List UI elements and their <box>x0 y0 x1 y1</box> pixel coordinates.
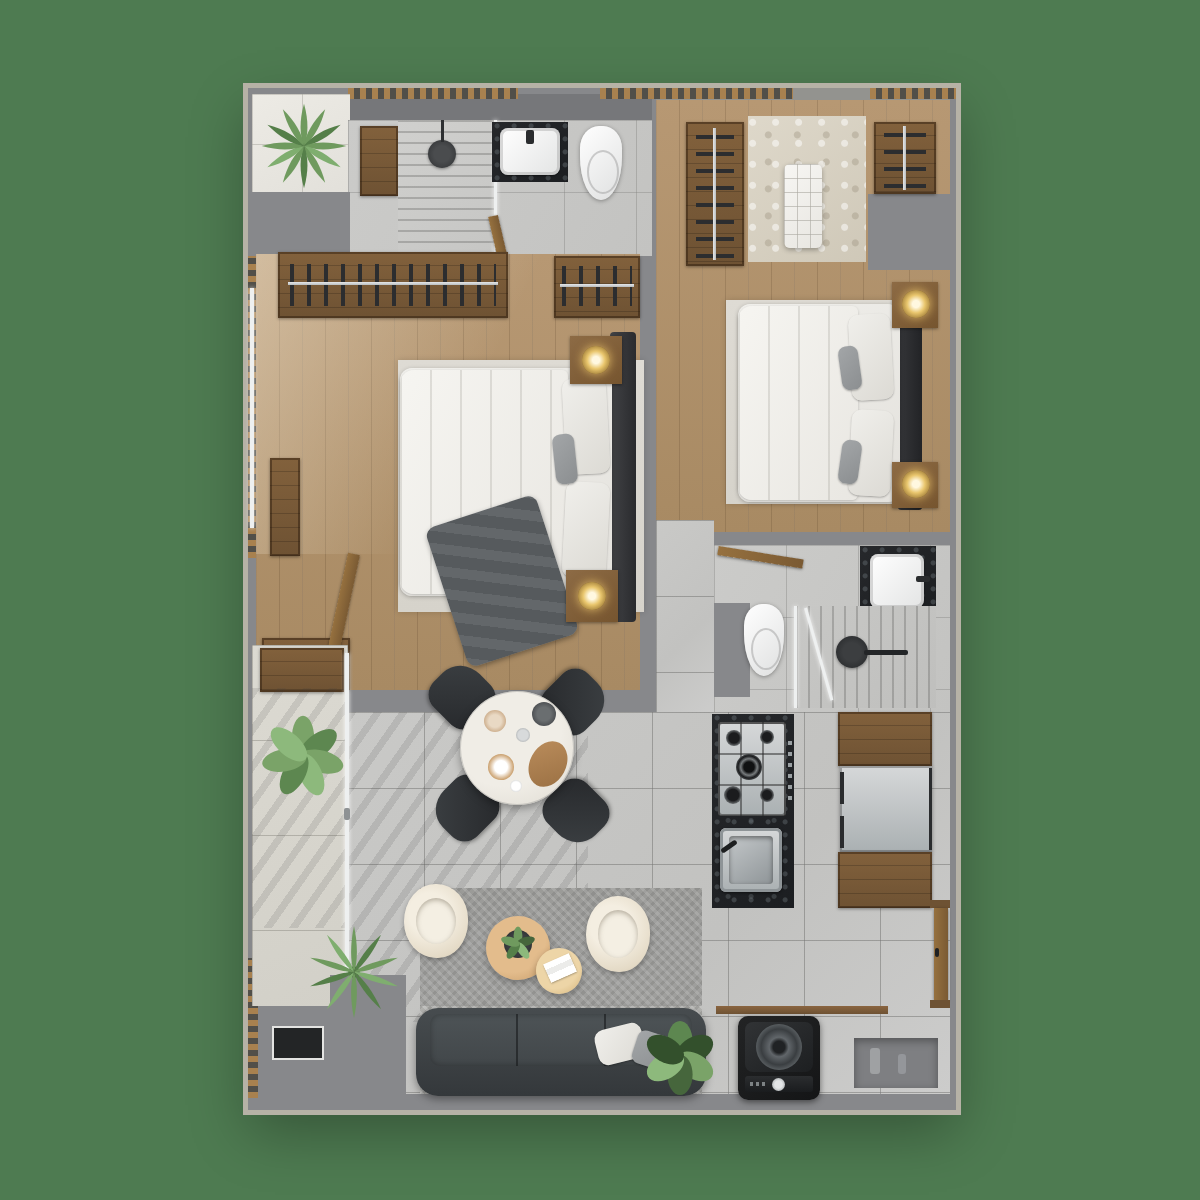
shower2-arm <box>864 650 908 655</box>
bedroom2-lamp-bottom <box>902 470 930 498</box>
louver-top-2 <box>600 88 793 99</box>
wall-closet-right <box>868 194 950 270</box>
refrigerator <box>840 766 932 852</box>
burner-icon <box>760 788 774 802</box>
burner-icon <box>726 730 742 746</box>
vanity1-faucet-icon <box>526 130 534 144</box>
burner-icon <box>736 754 762 780</box>
burner-icon <box>724 786 742 804</box>
sofa-seat-divider <box>516 1014 518 1066</box>
armchair-seat <box>598 910 638 958</box>
plate <box>488 754 514 780</box>
entry-door-frame <box>930 900 950 908</box>
equipment-panel <box>272 1026 324 1060</box>
washer-knob <box>772 1078 785 1091</box>
shower1-head-icon <box>428 140 456 168</box>
cup <box>516 728 530 742</box>
refrigerator-hinge <box>929 768 932 850</box>
fern-plant <box>258 100 350 192</box>
shower1-stem <box>441 120 444 142</box>
plate <box>532 702 556 726</box>
cup <box>510 780 522 792</box>
floor-plan-screenshot: { "image": { "kind": "apartment floor pl… <box>0 0 1200 1200</box>
toilet2-seat-line <box>751 628 781 670</box>
plate <box>484 710 506 732</box>
wall-below-terrace <box>248 192 350 256</box>
palm-plant <box>306 924 402 1020</box>
bedroom1-lamp-top <box>582 346 610 374</box>
closet-rail-right <box>903 126 906 190</box>
armchair-seat <box>416 898 456 944</box>
shower2-glass <box>794 606 797 708</box>
washer-buttons <box>750 1082 768 1086</box>
bedroom2-lamp-top <box>902 290 930 318</box>
bath-mat-wood <box>360 126 398 196</box>
vanity2-faucet-icon <box>916 576 930 582</box>
bedroom1-hangers <box>290 264 496 306</box>
burner-icon <box>760 730 774 744</box>
refrigerator-handle <box>840 816 844 848</box>
niche-bottle <box>898 1054 906 1074</box>
corridor-floor <box>656 520 714 712</box>
kitchen-cabinet-top <box>838 712 932 766</box>
entry-door-handle <box>935 948 939 957</box>
bedroom1-window <box>250 288 254 528</box>
coffee-table-plant <box>496 922 540 966</box>
cooktop-knobs <box>788 736 792 800</box>
niche-bottle <box>870 1048 880 1074</box>
sliding-door-handle <box>344 808 350 820</box>
laundry-threshold <box>716 1006 888 1014</box>
washer-drum <box>756 1024 802 1070</box>
monstera-plant <box>638 1008 722 1108</box>
closet-rail-left <box>713 128 716 260</box>
bedroom1-rail-2 <box>560 284 634 287</box>
bedroom1-pillow-bottom <box>562 481 611 579</box>
toilet1-seat-line <box>587 150 619 194</box>
kitchen-cabinet-bottom <box>838 852 932 908</box>
bedroom1-console <box>270 458 300 556</box>
balcony-deck <box>260 648 344 692</box>
louver-top-3 <box>870 88 956 99</box>
closet-bench <box>784 164 822 248</box>
alocasia-plant <box>260 714 346 800</box>
laundry-niche <box>854 1038 938 1088</box>
floor-plan <box>248 88 956 1110</box>
louver-top-1 <box>348 88 518 99</box>
bedroom1-rail <box>288 282 498 285</box>
refrigerator-handle <box>840 772 844 804</box>
bedroom1-lamp-bottom <box>578 582 606 610</box>
entry-door-frame <box>930 1000 950 1008</box>
